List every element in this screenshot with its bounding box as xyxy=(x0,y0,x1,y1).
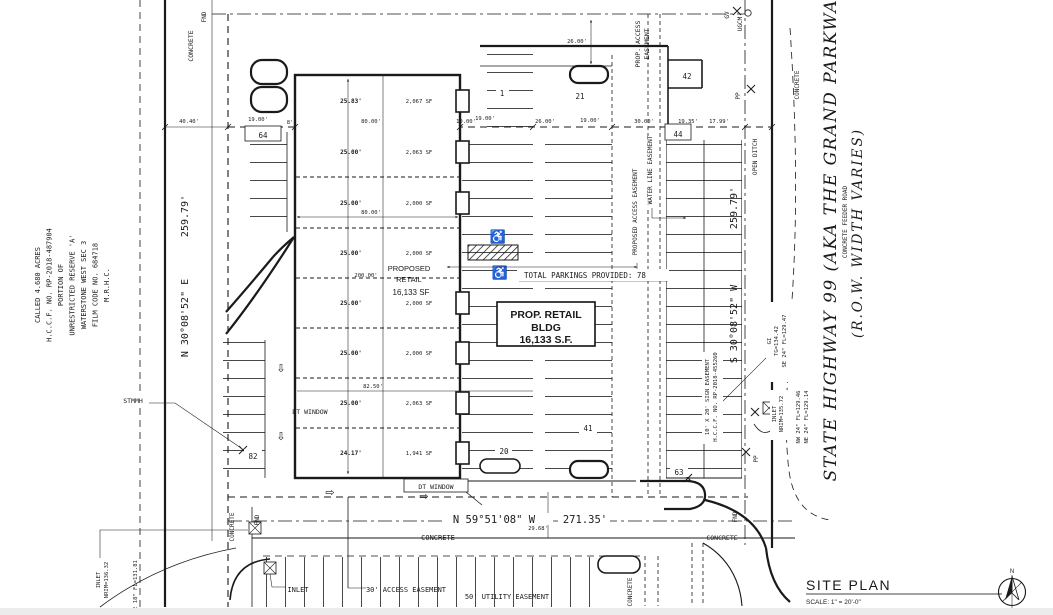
property-note-line: WATERSTONE WEST SEC 3 xyxy=(80,241,88,330)
dim: 29.68' xyxy=(528,526,548,532)
bay-area: 2,000 SF xyxy=(406,201,433,207)
bay-dim: 25.00' xyxy=(340,200,362,207)
callout-line2: BLDG xyxy=(531,322,561,334)
curb-end-mid-left xyxy=(480,459,520,473)
bay-area: 1,941 SF xyxy=(406,451,433,457)
inlet-sw-leader xyxy=(100,530,248,558)
ugcm-marker xyxy=(745,10,751,16)
island-north xyxy=(570,66,608,83)
dt-window-rear-label: DT WINDOW xyxy=(418,483,453,491)
property-note-line: CALLED 4.680 ACRES xyxy=(34,247,42,323)
dt-window-side-label: DT WINDOW xyxy=(292,408,327,416)
sign-easement: 10' X 20' SIGN EASEMENT xyxy=(705,358,711,435)
water-line-easement: WATER LINE EASEMENT xyxy=(647,135,654,204)
site-plan-sheet: ♿ ♿ xyxy=(0,0,1053,615)
sheet-scale: SCALE: 1" = 20'-0" xyxy=(806,599,862,606)
stall-group-west-upper xyxy=(250,130,287,234)
east-bearing: S 30°08'52" W xyxy=(729,284,740,363)
right-arrow-icon: ⇨ xyxy=(325,487,334,499)
dim: 19.35' xyxy=(678,119,698,125)
dim: 19.00' xyxy=(580,118,600,124)
dim: 10.00' xyxy=(456,119,476,125)
inlet-e: INLET xyxy=(772,405,778,422)
inlet-sw: INLET xyxy=(96,571,102,588)
south-distance: 271.35' xyxy=(563,514,607,526)
count-20: 20 xyxy=(499,447,509,456)
dim: 19.00' xyxy=(248,117,268,123)
bay-dim: 25.00' xyxy=(340,400,362,407)
dim: 26.00' xyxy=(567,39,587,45)
bay-area: 2,063 SF xyxy=(406,150,433,156)
concrete-label: CONCRETE xyxy=(229,512,236,541)
callout-line3: 16,133 S.F. xyxy=(519,334,572,346)
concrete-label: CONCRETE xyxy=(627,577,634,606)
stmmh-label: STMMH xyxy=(123,397,143,405)
page-edge-strip xyxy=(0,608,1053,615)
property-note: CALLED 4.680 ACRES H.C.C.F. NO. RP-2018-… xyxy=(34,228,111,342)
building-center-area: 16,133 SF xyxy=(393,288,430,297)
inlet-s-label: INLET xyxy=(287,586,309,594)
down-arrow-icon: ⇩ xyxy=(276,363,285,375)
island-bottom-row xyxy=(598,556,640,573)
bay-dim: 25.83' xyxy=(340,98,362,105)
grate-inlet: GI xyxy=(767,338,773,345)
concrete-label: CONCRETE xyxy=(794,70,801,99)
highway-row-note: (R.O.W. WIDTH VARIES) xyxy=(850,128,866,338)
inlet-e: NRIM=135.72 xyxy=(779,396,785,432)
fnd-label: FND xyxy=(201,11,208,22)
count-41: 41 xyxy=(583,424,592,433)
dim: 30.00' xyxy=(634,119,654,125)
bay-area: 2,063 SF xyxy=(406,401,433,407)
se-corner-sweep xyxy=(766,548,790,602)
bay-area: 2,000 SF xyxy=(406,351,433,357)
s-drive-curve xyxy=(703,543,742,606)
sw-corner-arc xyxy=(100,548,236,607)
building-center-label: PROPOSED xyxy=(388,264,431,273)
inlet-e: NW 24" FL=129.46 xyxy=(796,391,802,444)
concrete-label: CONCRETE xyxy=(187,30,195,61)
bay-dim: 24.17' xyxy=(340,450,362,457)
north-letter: N xyxy=(1010,569,1014,575)
east-distance: 259.79' xyxy=(729,187,740,229)
count-21: 21 xyxy=(575,92,584,101)
depth-dim: 200.00' xyxy=(354,273,377,279)
gv-label: GV xyxy=(724,11,731,19)
property-note-line: H.C.C.F. NO. RP-2018-487904 xyxy=(46,228,54,342)
se-curb-bulb xyxy=(640,481,705,509)
down-arrow-icon: ⇩ xyxy=(276,431,285,443)
north-arrow: N xyxy=(999,569,1026,608)
sheet-title: SITE PLAN xyxy=(806,577,891,593)
bay-area: 2,000 SF xyxy=(406,251,433,257)
island-south-mid xyxy=(570,461,608,478)
dim: 19.00' xyxy=(475,116,495,122)
bay-dim: 25.00' xyxy=(340,250,362,257)
bay-area: 2,000 SF xyxy=(406,301,433,307)
property-note-line: UNRESTRICTED RESERVE 'A' xyxy=(69,234,77,335)
width-dim-mid: 80.00' xyxy=(361,210,381,216)
count-1: 1 xyxy=(500,89,505,98)
sign-easement: H.C.C.F. NO. RP-2018-455260 xyxy=(713,352,719,441)
grate-inlet: TG=134.42 xyxy=(774,326,780,356)
south-bearing: N 59°51'08" W xyxy=(453,514,536,526)
fnd-label: FND xyxy=(732,511,739,522)
open-ditch-label: OPEN DITCH xyxy=(752,139,759,176)
dt-window-leader xyxy=(466,492,482,505)
title-block: SITE PLAN SCALE: 1" = 20'-0" N xyxy=(806,569,1026,608)
property-note-line: M.R.H.C. xyxy=(103,268,111,302)
concrete-label: CONCRETE xyxy=(706,534,737,542)
west-distance: 259.79' xyxy=(180,195,191,237)
dim: 17.99' xyxy=(709,119,729,125)
entry-island-b xyxy=(251,87,287,112)
right-arrow-icon: ⇨ xyxy=(419,491,428,503)
bay-dim: 25.00' xyxy=(340,149,362,156)
inlet-sw: NRIM=136.32 xyxy=(104,562,110,598)
prop-access-easement: EASEMENT xyxy=(643,28,651,59)
fnd-label: FND xyxy=(254,514,261,525)
island-curve-outer xyxy=(226,237,294,334)
count-82: 82 xyxy=(248,452,257,461)
prop-access-easement: PROP. ACCESS xyxy=(634,20,642,67)
bay-area: 2,067 SF xyxy=(406,99,433,105)
ramp-hatch xyxy=(468,245,518,260)
callout-line1: PROP. RETAIL xyxy=(510,309,582,321)
dim: 80.00' xyxy=(361,119,381,125)
width-dim-low: 82.50' xyxy=(363,384,383,390)
pp-label: PP xyxy=(753,455,760,463)
wheelchair-icon: ♿ xyxy=(490,229,506,244)
building-center-label: RETAIL xyxy=(396,275,422,284)
inlet-sw: E 18" FL=131.81 xyxy=(133,560,139,610)
dim: 8' xyxy=(287,120,294,126)
count-44: 44 xyxy=(673,130,683,139)
site-plan-drawing: ♿ ♿ xyxy=(0,0,1053,615)
access-30-easement: 30' ACCESS EASEMENT xyxy=(366,586,447,594)
ne-drive-pocket xyxy=(668,46,702,124)
property-note-line: PORTION OF xyxy=(57,264,65,306)
dim: 40.40' xyxy=(179,119,199,125)
proposed-access-easement: PROPOSED ACCESS EASEMENT xyxy=(632,168,639,255)
total-parking-note: TOTAL PARKINGS PROVIDED: 78 xyxy=(524,271,646,280)
ugcm-label: UGCM xyxy=(737,16,744,31)
utility-50-easement: 50' UTILITY EASEMENT xyxy=(465,593,550,601)
property-note-line: FILM CODE NO. 684718 xyxy=(92,243,100,327)
highway-name: STATE HIGHWAY 99 (AKA THE GRAND PARKWAY) xyxy=(821,0,841,481)
pp-label: PP xyxy=(735,92,742,100)
entry-island-a xyxy=(251,60,287,84)
bay-dim: 25.00' xyxy=(340,300,362,307)
count-63: 63 xyxy=(674,468,683,477)
bay-dim: 25.00' xyxy=(340,350,362,357)
west-bearing: N 30°08'52" E xyxy=(180,279,191,357)
dim: 26.00' xyxy=(535,119,555,125)
count-64: 64 xyxy=(258,131,268,140)
feeder-road-label: CONCRETE FEEDER ROAD xyxy=(842,185,849,258)
count-42: 42 xyxy=(682,72,691,81)
concrete-label: CONCRETE xyxy=(421,534,455,542)
inlet-e: NE 24" FL=129.14 xyxy=(804,390,810,444)
grate-inlet: SE 24" FL=129.47 xyxy=(782,315,788,368)
